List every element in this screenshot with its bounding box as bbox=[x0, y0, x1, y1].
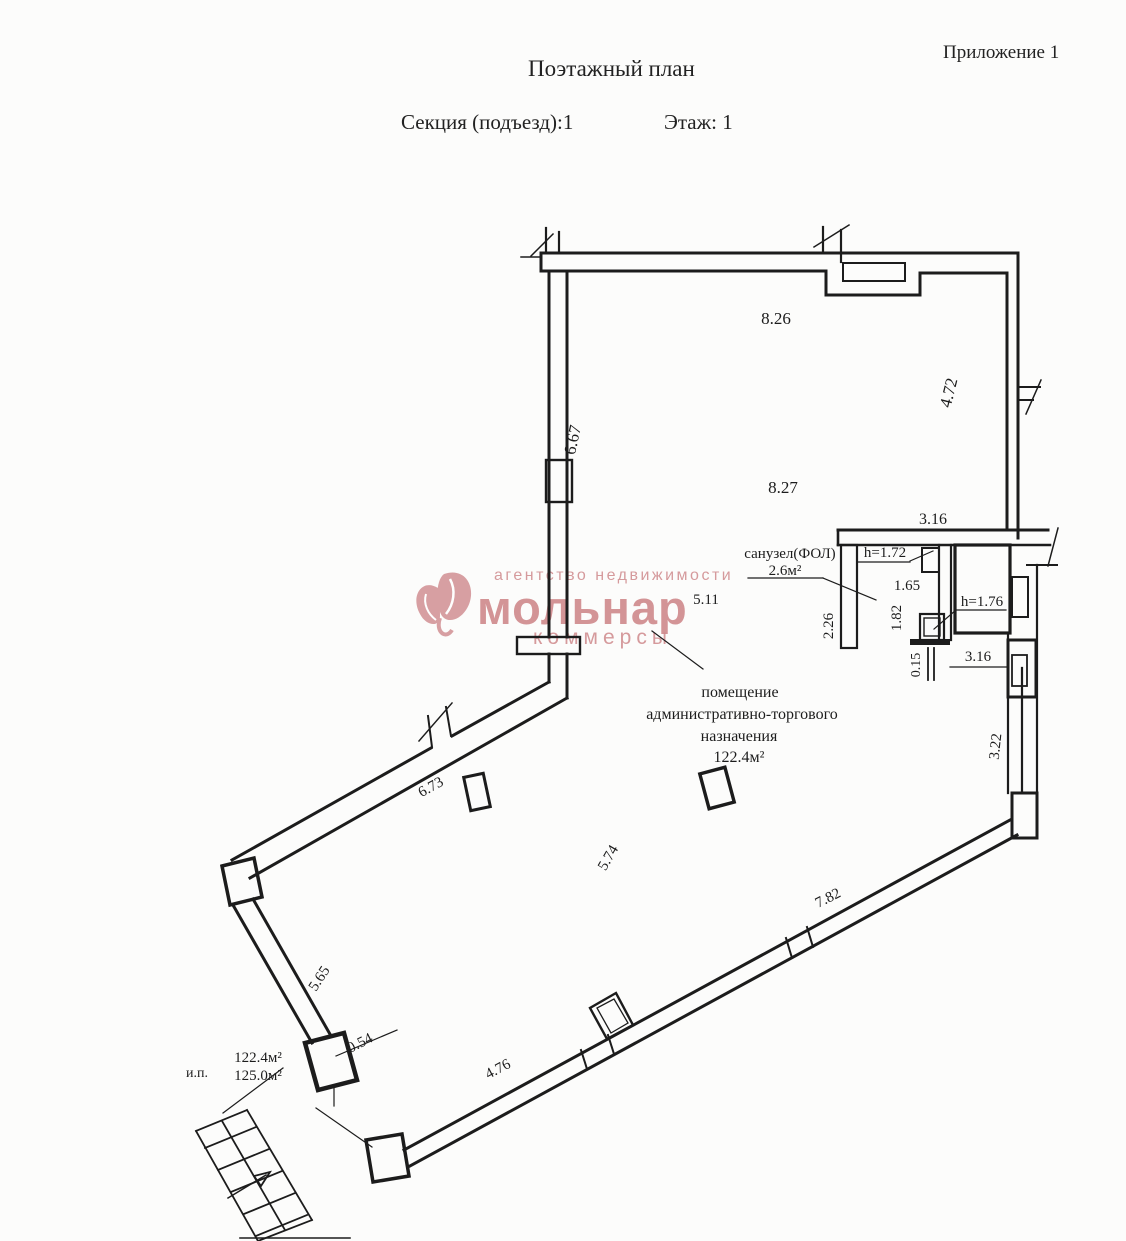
wall-break-marks bbox=[419, 225, 1058, 747]
dim-sanuzel-182: 1.82 bbox=[889, 605, 905, 631]
dim-sanuzel-top: 3.16 bbox=[919, 511, 947, 528]
room-label-line3: назначения bbox=[701, 728, 778, 745]
corner-pillar bbox=[222, 858, 262, 905]
dim-bottom-right: 7.82 bbox=[813, 885, 844, 911]
room-pillar-left bbox=[464, 773, 491, 810]
dim-sanuzel-165: 1.65 bbox=[894, 578, 920, 594]
dim-diagonal-wall: 6.73 bbox=[416, 774, 447, 801]
pillars bbox=[222, 767, 734, 1182]
dim-bottom-left: 4.76 bbox=[483, 1056, 514, 1083]
dim-gap-015: 0.15 bbox=[909, 653, 924, 678]
sanuzel-walls bbox=[841, 545, 1028, 680]
plan-labels: 8.26 4.72 6.67 8.27 3.16 5.11 санузел(ФО… bbox=[186, 309, 1005, 1084]
bottom-wall-niche bbox=[590, 993, 633, 1039]
sanuzel-name-label: санузел(ФОЛ) bbox=[744, 546, 835, 562]
dim-inner-width: 5.11 bbox=[693, 592, 719, 608]
room-label-line2: административно-торгового bbox=[646, 706, 838, 723]
stairs bbox=[196, 1110, 350, 1241]
dim-height-172: h=1.72 bbox=[864, 545, 906, 561]
floor-plan-page: Поэтажный план Приложение 1 Секция (подъ… bbox=[0, 0, 1126, 1241]
floor-plan-drawing: 8.26 4.72 6.67 8.27 3.16 5.11 санузел(ФО… bbox=[0, 0, 1126, 1241]
dim-top-wall: 8.26 bbox=[761, 309, 791, 328]
dim-right-bottom-wall: 3.22 bbox=[987, 733, 1006, 761]
dim-height-176: h=1.76 bbox=[961, 594, 1004, 610]
walls bbox=[232, 253, 1057, 1166]
room-pillar-right bbox=[700, 767, 734, 809]
sanuzel-area-label: 2.6м² bbox=[769, 563, 802, 579]
ip-label: и.п. bbox=[186, 1066, 208, 1081]
room-label-line1: помещение bbox=[701, 684, 778, 701]
ip-area1-label: 122.4м² bbox=[234, 1050, 282, 1066]
dim-door-width: 0.54 bbox=[345, 1030, 376, 1056]
dim-left-wall: 6.67 bbox=[560, 423, 585, 457]
dim-mid-room: 8.27 bbox=[768, 478, 798, 497]
dim-left-lower: 5.65 bbox=[306, 963, 334, 994]
bottom-wall-pillar bbox=[366, 1134, 409, 1182]
ip-area2-label: 125.0м² bbox=[234, 1068, 282, 1084]
dim-sanuzel-226: 2.26 bbox=[821, 612, 837, 639]
room-area-label: 122.4м² bbox=[714, 749, 765, 766]
dim-room-depth: 5.74 bbox=[595, 842, 622, 873]
dim-right-top-wall: 4.72 bbox=[936, 376, 962, 409]
dim-sanuzel-bottom: 3.16 bbox=[965, 649, 992, 665]
